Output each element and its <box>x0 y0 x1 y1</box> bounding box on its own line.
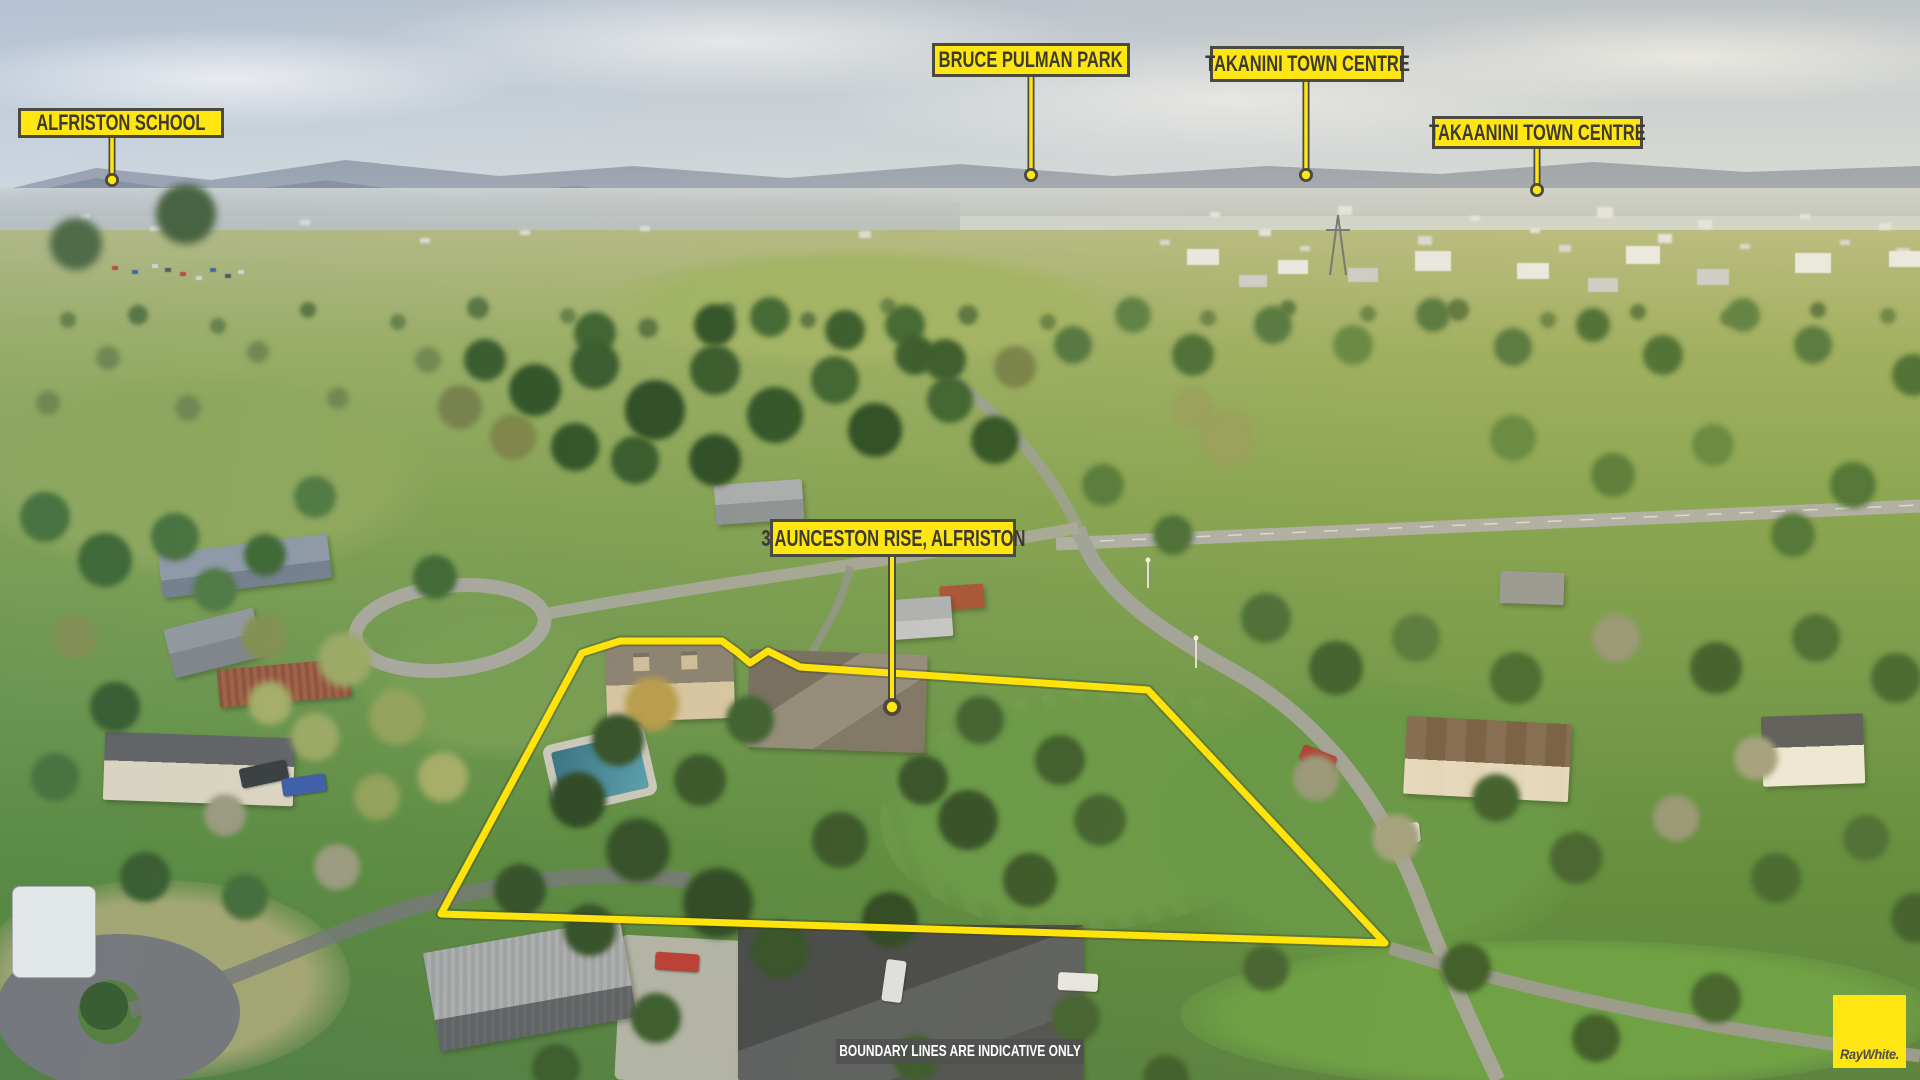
leader-takaanini-town-centre <box>1530 146 1544 197</box>
disclaimer-text: BOUNDARY LINES ARE INDICATIVE ONLY <box>839 1043 1081 1061</box>
leader-property <box>883 553 901 716</box>
leader-takanini-town-centre <box>1299 78 1313 182</box>
property-boundary-outline <box>441 641 1385 943</box>
map-label-text: TAKAANINI TOWN CENTRE <box>1429 120 1646 146</box>
map-label-alfriston-school: ALFRISTON SCHOOL <box>18 108 224 138</box>
leader-alfriston-school <box>105 134 119 187</box>
map-label-bruce-pulman-park: BRUCE PULMAN PARK <box>932 43 1130 77</box>
map-label-takanini-town-centre: TAKANINI TOWN CENTRE <box>1210 46 1404 82</box>
leader-bruce-pulman-park <box>1024 74 1038 182</box>
map-label-text: TAKANINI TOWN CENTRE <box>1205 51 1410 77</box>
aerial-photo: ALFRISTON SCHOOL BRUCE PULMAN PARK TAKAN… <box>0 0 1920 1080</box>
boundary-disclaimer: BOUNDARY LINES ARE INDICATIVE ONLY <box>836 1039 1084 1064</box>
raywhite-logo: RayWhite. <box>1833 995 1906 1068</box>
map-label-takaanini-town-centre: TAKAANINI TOWN CENTRE <box>1432 116 1643 149</box>
map-label-text: BRUCE PULMAN PARK <box>939 47 1123 73</box>
property-address-label: 3 AUNCESTON RISE, ALFRISTON <box>770 519 1016 557</box>
property-address-text: 3 AUNCESTON RISE, ALFRISTON <box>761 525 1025 552</box>
map-label-text: ALFRISTON SCHOOL <box>36 110 205 136</box>
raywhite-logo-text: RayWhite. <box>1840 1046 1899 1062</box>
